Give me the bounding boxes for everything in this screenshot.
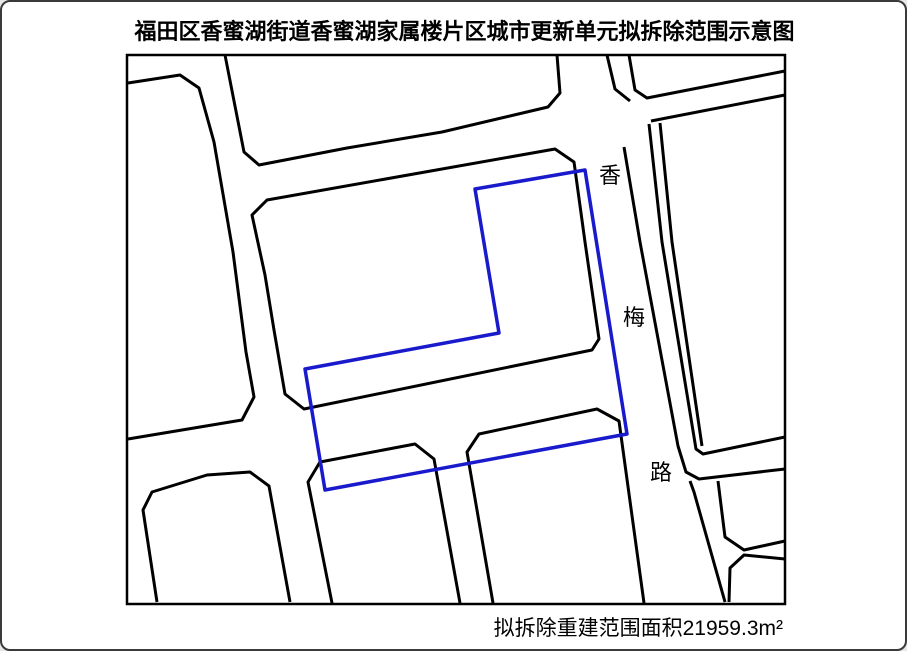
road-xiangmei-east-inner [660,123,702,446]
block-southeast-lower [729,555,785,602]
area-value-label: 拟拆除重建范围面积21959.3m² [494,612,783,642]
demolition-boundary [305,170,627,490]
schematic-page: 福田区香蜜湖街道香蜜湖家属楼片区城市更新单元拟拆除范围示意图 香梅路 拟拆除重建… [0,0,907,651]
road-label-char: 路 [650,460,672,485]
road-xiangmei-west-edge [624,147,785,479]
building-b [467,409,644,603]
road-northeast-south-edge [651,95,785,121]
block-northeast-inner-edge [607,55,630,101]
block-left-large [128,75,254,439]
block-northeast-outer-edge [629,55,785,98]
road-label-char: 梅 [623,305,645,330]
block-southwest [143,472,290,602]
road-label-char: 香 [599,163,621,188]
demolition-map: 香梅路 [2,2,905,649]
block-north-top [225,55,560,165]
block-southeast-upper [718,481,785,550]
